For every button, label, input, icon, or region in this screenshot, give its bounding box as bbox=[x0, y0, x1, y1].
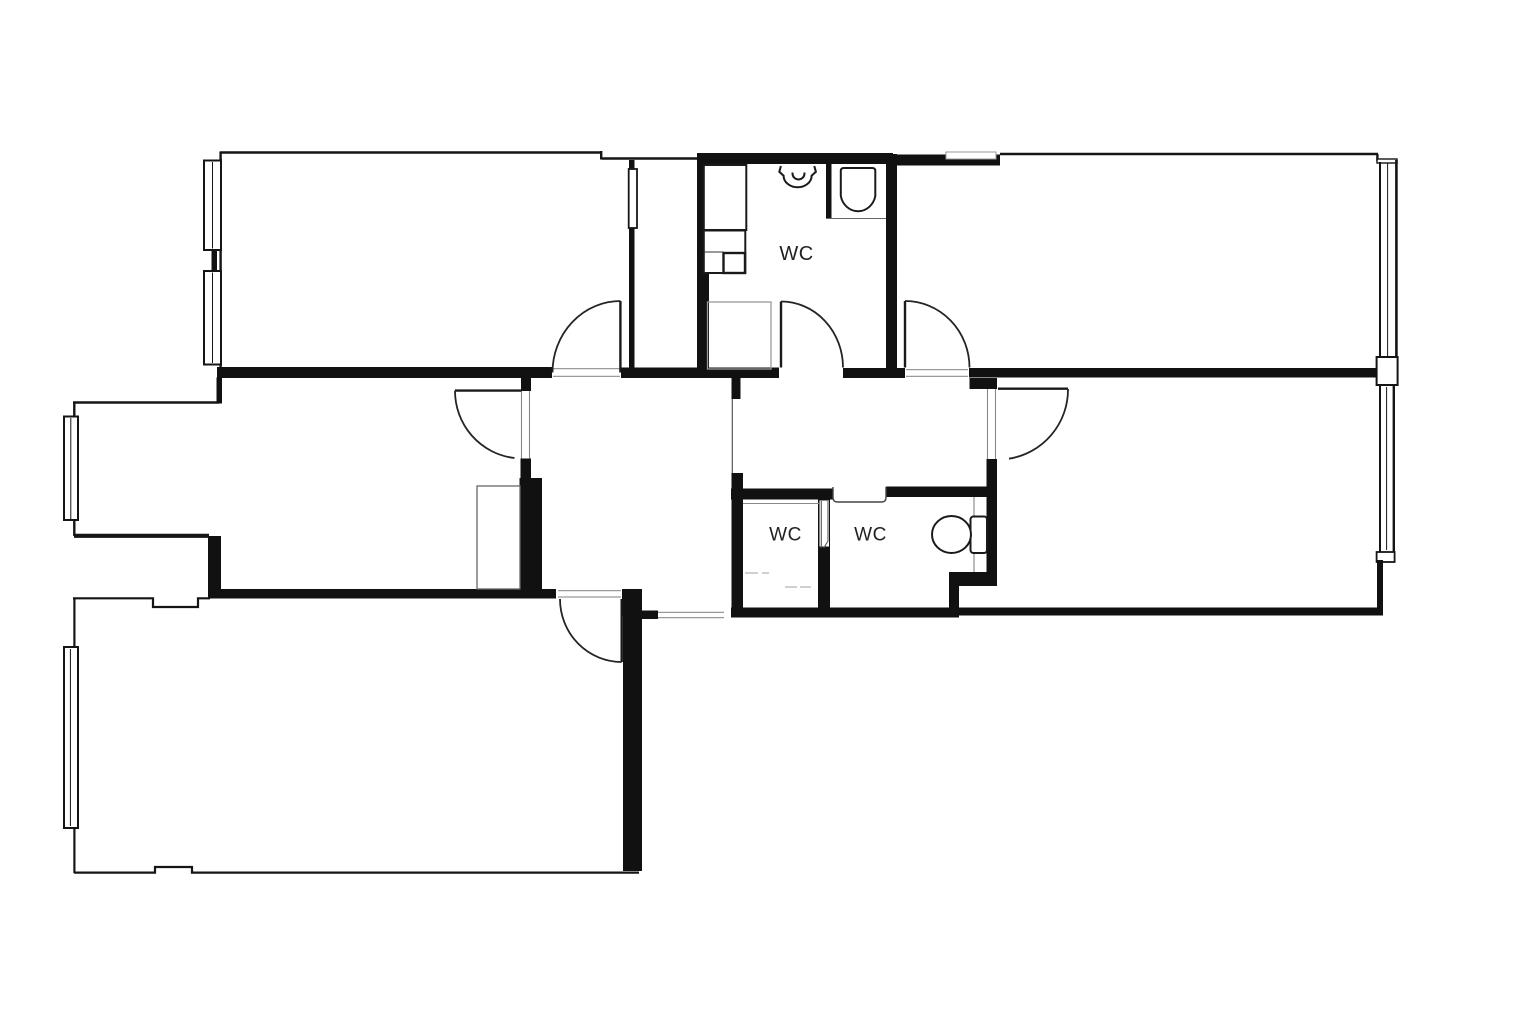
svg-text:WC: WC bbox=[769, 525, 802, 546]
svg-text:WC: WC bbox=[854, 525, 887, 546]
svg-text:WC: WC bbox=[779, 243, 813, 265]
